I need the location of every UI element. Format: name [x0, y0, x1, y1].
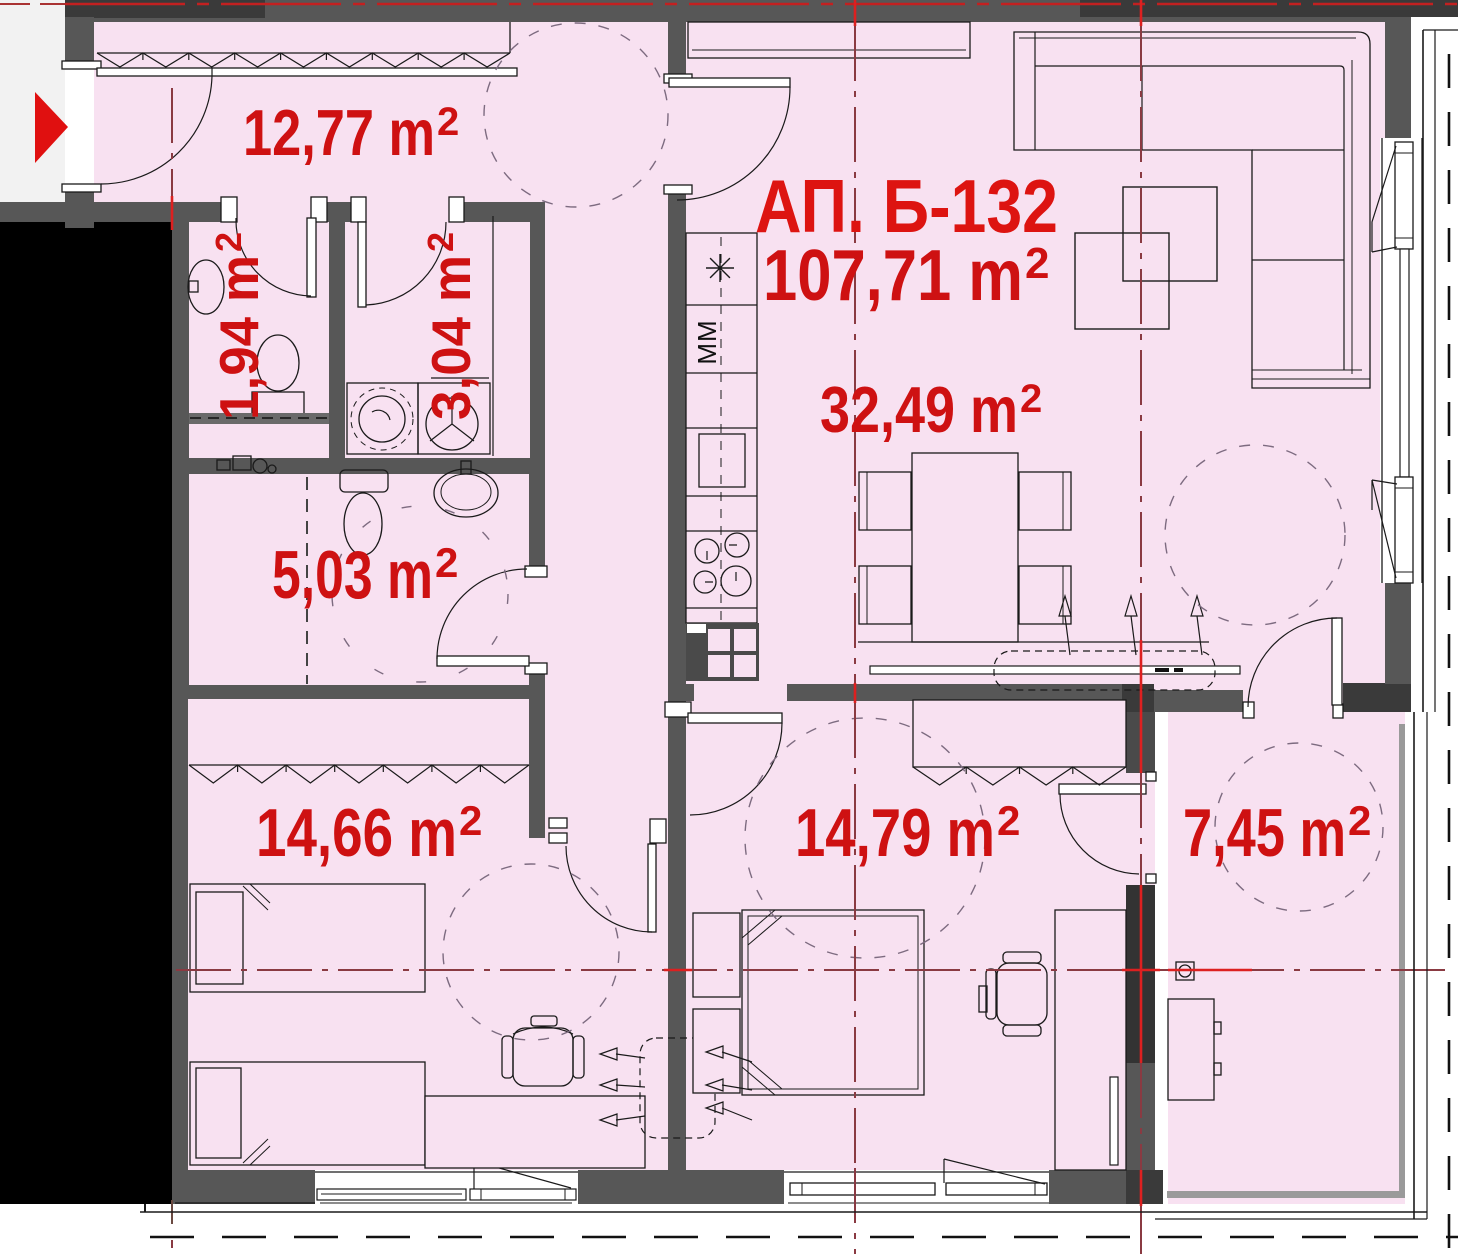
svg-text:2: 2	[1348, 797, 1371, 844]
svg-text:12,77 m: 12,77 m	[243, 96, 435, 169]
svg-text:2: 2	[435, 539, 458, 586]
svg-text:2: 2	[437, 100, 459, 144]
svg-text:14,79 m: 14,79 m	[795, 795, 995, 871]
svg-text:2: 2	[997, 797, 1020, 844]
svg-text:3,04 m: 3,04 m	[420, 255, 482, 420]
svg-text:14,66 m: 14,66 m	[256, 795, 457, 871]
svg-text:2: 2	[1025, 239, 1049, 288]
svg-text:2: 2	[420, 232, 461, 252]
svg-text:107,71 m: 107,71 m	[763, 236, 1023, 316]
svg-text:1,94 m: 1,94 m	[208, 255, 270, 420]
svg-text:2: 2	[1020, 377, 1042, 421]
svg-text:32,49 m: 32,49 m	[820, 373, 1018, 446]
svg-text:2: 2	[208, 232, 249, 252]
svg-text:MM: MM	[692, 319, 722, 364]
svg-text:2: 2	[459, 797, 482, 844]
svg-text:5,03 m: 5,03 m	[272, 537, 433, 613]
svg-text:7,45 m: 7,45 m	[1183, 795, 1346, 871]
